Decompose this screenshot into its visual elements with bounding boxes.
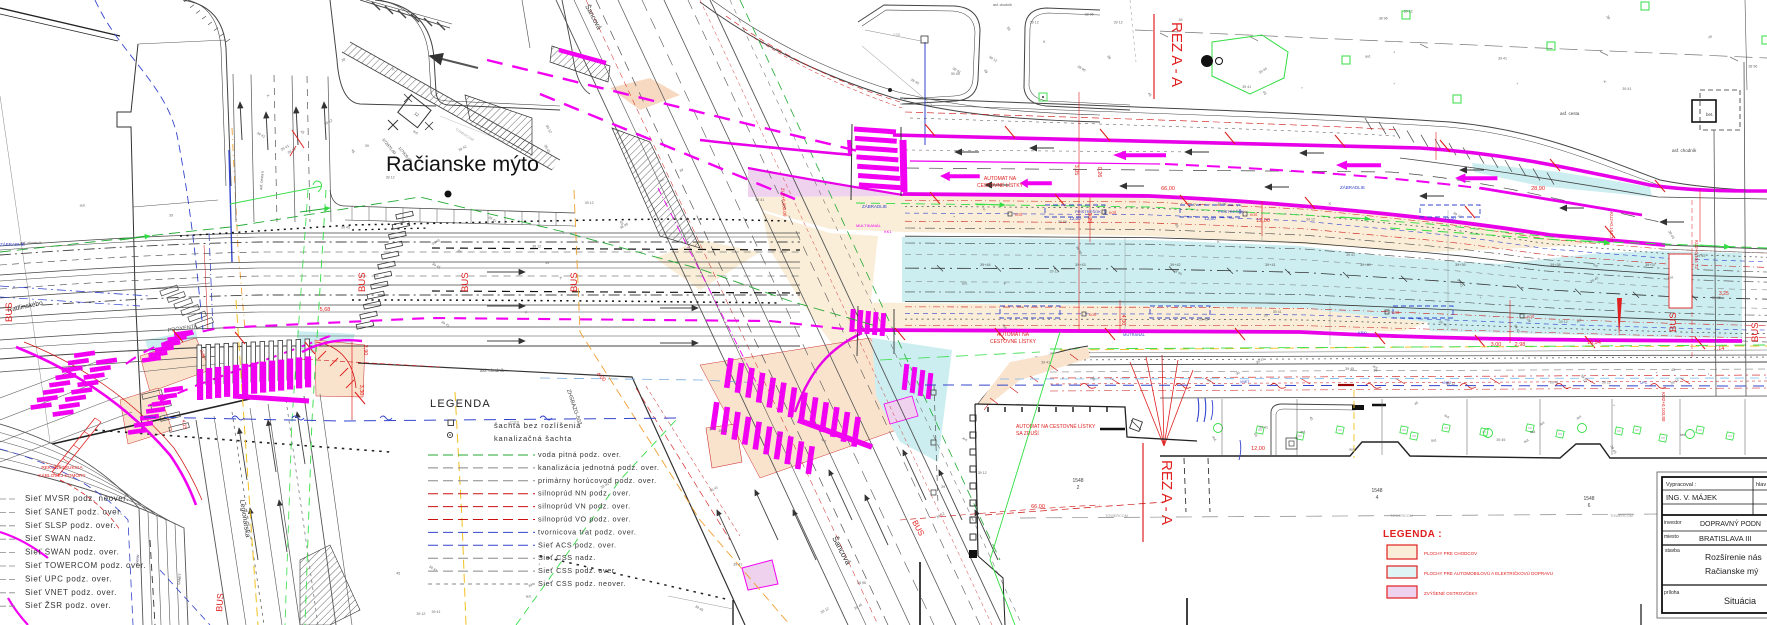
svg-text:Sieť MVSR podz. neover.: Sieť MVSR podz. neover. <box>25 494 129 503</box>
svg-text:asf.: asf. <box>1530 430 1536 434</box>
svg-text:primárny horúcovod podz. over.: primárny horúcovod podz. over. <box>538 476 657 485</box>
svg-text:39 41: 39 41 <box>1622 87 1631 91</box>
svg-text:MULTIKANÁL: MULTIKANÁL <box>856 223 882 228</box>
svg-text:12,00: 12,00 <box>1204 216 1216 221</box>
svg-text:asf. chodník: asf. chodník <box>480 368 505 373</box>
svg-text:1548: 1548 <box>1371 488 1382 494</box>
svg-text:39: 39 <box>545 261 549 265</box>
svg-text:39+38: 39+38 <box>1550 263 1561 267</box>
svg-text:Rozšírenie nás: Rozšírenie nás <box>1705 552 1762 562</box>
svg-text:hlav: hlav <box>1756 482 1766 488</box>
svg-text:38 96: 38 96 <box>1379 17 1388 21</box>
svg-text:39 12: 39 12 <box>1602 381 1611 385</box>
svg-text:2: 2 <box>1077 485 1080 491</box>
svg-text:12,00: 12,00 <box>1444 216 1456 221</box>
svg-text:+: + <box>1516 82 1518 86</box>
svg-text:Račianske mýto: Račianske mýto <box>386 152 539 176</box>
svg-text:39 12: 39 12 <box>416 612 425 616</box>
svg-text:1548: 1548 <box>1072 478 1083 484</box>
svg-text:39 12: 39 12 <box>978 471 987 475</box>
svg-text:asf. cesta: asf. cesta <box>1560 111 1580 116</box>
svg-text:KÁBLOVEJ KOMORY: KÁBLOVEJ KOMORY <box>38 472 86 479</box>
svg-text:KOŠ: KOŠ <box>1392 310 1400 315</box>
svg-text:aut.: aut. <box>777 434 783 438</box>
svg-text:aut.: aut. <box>1349 448 1355 452</box>
svg-text:PRÍSTREŠOK: PRÍSTREŠOK <box>1218 209 1244 214</box>
svg-text:39+41: 39+41 <box>1265 263 1276 267</box>
svg-text:39 41: 39 41 <box>1259 426 1268 430</box>
svg-text:KOŠ: KOŠ <box>1109 210 1117 215</box>
svg-text:39: 39 <box>365 144 369 148</box>
svg-text:BUS: BUS <box>357 272 368 292</box>
svg-text:CESTOVNÉ LÍSTKY: CESTOVNÉ LÍSTKY <box>990 338 1037 345</box>
svg-text:BRATISLAVA III: BRATISLAVA III <box>1699 534 1752 543</box>
svg-text:ZÁBRADLIE: ZÁBRADLIE <box>1340 184 1365 190</box>
svg-text:12,00: 12,00 <box>1256 218 1270 224</box>
svg-text:UPC: UPC <box>1640 381 1648 385</box>
svg-text:Sieť TOWERCOM podz. over.: Sieť TOWERCOM podz. over. <box>25 561 146 570</box>
svg-text:VNET: VNET <box>1240 380 1250 384</box>
svg-text:39+42: 39+42 <box>1170 263 1181 267</box>
svg-text:Sieť CSS podz. over.: Sieť CSS podz. over. <box>538 566 617 575</box>
svg-text:KOŠ: KOŠ <box>1250 212 1258 217</box>
svg-text:39 45: 39 45 <box>1696 254 1705 258</box>
svg-text:39: 39 <box>169 213 173 217</box>
svg-text:39+39: 39+39 <box>1455 263 1466 267</box>
svg-text:3,05: 3,05 <box>1073 165 1079 176</box>
svg-text:38 96: 38 96 <box>1058 220 1067 224</box>
svg-text:Sieť CSS nadz.: Sieť CSS nadz. <box>538 553 596 562</box>
svg-text:39+37: 39+37 <box>1645 263 1656 267</box>
svg-text:39+43: 39+43 <box>1075 263 1086 267</box>
svg-text:aut.: aut. <box>526 594 532 598</box>
svg-text:Sieť VNET podz. over.: Sieť VNET podz. over. <box>25 588 117 597</box>
svg-text:Sieť SLSP podz. over.: Sieť SLSP podz. over. <box>25 521 116 530</box>
svg-text:38 96: 38 96 <box>1085 13 1094 17</box>
svg-text:39: 39 <box>1373 368 1377 372</box>
svg-text:39 12: 39 12 <box>1446 382 1455 386</box>
svg-text:tvornicova trat podz. over.: tvornicova trat podz. over. <box>538 527 637 536</box>
svg-text:39 12: 39 12 <box>1404 9 1413 13</box>
svg-text:aut.: aut. <box>80 203 86 207</box>
svg-text:39 41: 39 41 <box>1041 360 1050 364</box>
svg-text:BUS: BUS <box>4 302 15 322</box>
svg-text:ZÁBRADLIE: ZÁBRADLIE <box>0 241 25 247</box>
svg-text:38 96: 38 96 <box>1748 64 1757 68</box>
svg-text:Vypracoval :: Vypracoval : <box>1666 482 1697 488</box>
svg-text:Sieť SWAN nadz.: Sieť SWAN nadz. <box>25 534 96 543</box>
svg-text:39 45: 39 45 <box>1199 318 1208 322</box>
svg-text:TOWERCOM: TOWERCOM <box>1390 514 1413 518</box>
svg-text:TOWERCOM: TOWERCOM <box>1610 514 1633 518</box>
svg-text:silnoprúd VN podz. over.: silnoprúd VN podz. over. <box>538 502 631 511</box>
svg-text:kanalizácia jednotná podz. ove: kanalizácia jednotná podz. over. <box>538 463 660 472</box>
svg-text:39 12: 39 12 <box>1114 21 1123 25</box>
svg-text:PRÍSTREŠOK: PRÍSTREŠOK <box>1075 209 1101 214</box>
svg-text:Račianske mý: Račianske mý <box>1705 566 1759 576</box>
svg-text:+: + <box>1374 386 1376 390</box>
svg-text:39 41: 39 41 <box>733 563 742 567</box>
svg-text:4,00: 4,00 <box>1120 315 1126 326</box>
svg-text:39 12: 39 12 <box>532 245 541 249</box>
svg-text:LEGENDA: LEGENDA <box>430 398 491 410</box>
svg-text:investor: investor <box>1664 520 1682 526</box>
svg-text:3,30: 3,30 <box>358 385 364 396</box>
svg-text:CESTOVNÉ LÍSTKY: CESTOVNÉ LÍSTKY <box>977 182 1024 189</box>
svg-text:Sieť UPC podz. over.: Sieť UPC podz. over. <box>25 574 112 583</box>
svg-text:4: 4 <box>1376 495 1379 501</box>
svg-text:39 12: 39 12 <box>1306 218 1315 222</box>
svg-text:28,90: 28,90 <box>1531 186 1545 192</box>
svg-text:39+44: 39+44 <box>980 263 991 267</box>
svg-text:príloha: príloha <box>1664 590 1680 596</box>
svg-text:39 41: 39 41 <box>1346 253 1355 257</box>
svg-text:KRKI: KRKI <box>1358 330 1367 335</box>
svg-text:DOPRAVNÝ PODN: DOPRAVNÝ PODN <box>1700 519 1761 528</box>
svg-text:ZÁBRADLIE: ZÁBRADLIE <box>862 203 887 209</box>
svg-text:45: 45 <box>396 571 400 575</box>
svg-text:PLOCHY PRE AUTOMOBILOVÚ A ELEK: PLOCHY PRE AUTOMOBILOVÚ A ELEKTRIČKOVÚ D… <box>1424 570 1553 576</box>
svg-text:aut.: aut. <box>1365 55 1371 59</box>
svg-text:39: 39 <box>1179 18 1183 22</box>
svg-text:5,68: 5,68 <box>320 307 331 313</box>
svg-text:BUS: BUS <box>1668 312 1679 332</box>
svg-text:REKONŠTRUKCIA: REKONŠTRUKCIA <box>41 464 83 471</box>
svg-text:PLOCHY PRE CHODCOV: PLOCHY PRE CHODCOV <box>1424 551 1477 556</box>
svg-text:39 41: 39 41 <box>1242 85 1251 89</box>
svg-text:39 45: 39 45 <box>1712 296 1721 300</box>
svg-text:0,26: 0,26 <box>1096 167 1102 178</box>
svg-text:Situácia: Situácia <box>1724 596 1756 606</box>
svg-text:39 41: 39 41 <box>432 610 441 614</box>
svg-text:AUTOMAT NA: AUTOMAT NA <box>997 332 1030 338</box>
svg-text:39: 39 <box>1264 313 1268 317</box>
svg-text:12,00: 12,00 <box>1251 446 1265 452</box>
svg-text:LEGENDA :: LEGENDA : <box>1383 529 1442 540</box>
svg-text:3,25: 3,25 <box>1086 213 1092 224</box>
svg-text:39 12: 39 12 <box>585 201 594 205</box>
svg-text:Sieť ACS podz. over.: Sieť ACS podz. over. <box>538 540 617 549</box>
svg-text:KOŠ: KOŠ <box>1015 212 1023 217</box>
svg-text:asf. chodník: asf. chodník <box>1672 148 1697 153</box>
svg-text:bet.: bet. <box>1706 112 1714 117</box>
svg-text:silnoprúd NN podz. over.: silnoprúd NN podz. over. <box>538 489 631 498</box>
svg-text:aut.: aut. <box>1668 276 1674 280</box>
svg-text:38 96: 38 96 <box>1217 202 1226 206</box>
svg-text:TOWERCOM: TOWERCOM <box>1105 514 1128 518</box>
svg-text:MUTRANAL: MUTRANAL <box>1123 332 1146 337</box>
svg-text:miesto: miesto <box>1664 534 1679 540</box>
svg-text:bet.: bet. <box>1680 433 1686 437</box>
svg-text:39 41: 39 41 <box>1498 57 1507 61</box>
svg-text:39 12: 39 12 <box>1050 270 1059 274</box>
svg-text:12,00: 12,00 <box>1069 216 1081 221</box>
svg-text:39 12: 39 12 <box>1030 20 1039 24</box>
svg-text:Sieť SANET podz. over.: Sieť SANET podz. over. <box>25 507 123 516</box>
svg-text:6: 6 <box>1588 503 1591 509</box>
svg-text:KK1: KK1 <box>884 229 892 234</box>
svg-text:aut.: aut. <box>1431 438 1437 442</box>
svg-text:šachta bez rozlíšenia: šachta bez rozlíšenia <box>494 421 581 430</box>
svg-text:Sieť CSS podz. neover.: Sieť CSS podz. neover. <box>538 579 626 588</box>
svg-text:+: + <box>1480 296 1482 300</box>
svg-text:39 41: 39 41 <box>718 429 727 433</box>
svg-text:45: 45 <box>1671 368 1675 372</box>
svg-text:38 96: 38 96 <box>857 581 866 585</box>
svg-text:ZVÝŠENÉ OSTROVČEKY: ZVÝŠENÉ OSTROVČEKY <box>1424 590 1478 596</box>
svg-text:Sieť SWAN podz. over.: Sieť SWAN podz. over. <box>25 548 119 557</box>
svg-text:39 41: 39 41 <box>1550 381 1559 385</box>
svg-text:2,90: 2,90 <box>362 345 368 356</box>
svg-text:kanalizačná šachta: kanalizačná šachta <box>494 434 572 443</box>
svg-text:Sieť ŽSR podz. over.: Sieť ŽSR podz. over. <box>25 601 111 610</box>
svg-text:asf.: asf. <box>1300 430 1306 434</box>
svg-text:KOŠ: KOŠ <box>1089 312 1097 317</box>
svg-text:REZ A - A: REZ A - A <box>1158 460 1175 525</box>
svg-text:+: + <box>1385 382 1387 386</box>
svg-text:66,00: 66,00 <box>1161 186 1175 192</box>
svg-text:+: + <box>1656 371 1658 375</box>
svg-text:39 45: 39 45 <box>341 225 350 229</box>
svg-text:39 45: 39 45 <box>951 72 960 76</box>
svg-text:BUS: BUS <box>1750 322 1761 342</box>
svg-text:+: + <box>1022 305 1024 309</box>
svg-text:asf. chodník: asf. chodník <box>993 3 1012 7</box>
svg-text:KU2+0,104,72: KU2+0,104,72 <box>1609 212 1614 241</box>
svg-text:aut.: aut. <box>962 282 968 286</box>
svg-text:silnoprúd VO podz. over.: silnoprúd VO podz. over. <box>538 515 631 524</box>
svg-text:39 41: 39 41 <box>1273 310 1282 314</box>
svg-text:39 45: 39 45 <box>1496 438 1505 442</box>
svg-text:ING. V. MÁJEK: ING. V. MÁJEK <box>1666 493 1717 502</box>
svg-text:REZ A - A: REZ A - A <box>1168 22 1185 87</box>
svg-text:CSS: CSS <box>893 33 901 37</box>
svg-text:1548: 1548 <box>1583 496 1594 502</box>
svg-text:39 41: 39 41 <box>755 198 764 202</box>
svg-text:39 45: 39 45 <box>1345 367 1354 371</box>
svg-text:voda pitná podz. over.: voda pitná podz. over. <box>538 450 622 459</box>
svg-text:AUTOMAT NA: AUTOMAT NA <box>984 176 1017 182</box>
svg-text:BUS: BUS <box>460 272 471 292</box>
svg-text:39 12: 39 12 <box>386 176 395 180</box>
svg-text:AUTOMAT NA CESTOVNÉ LÍSTKY: AUTOMAT NA CESTOVNÉ LÍSTKY <box>1016 423 1096 430</box>
svg-text:stavba: stavba <box>1665 548 1680 554</box>
svg-text:39+40: 39+40 <box>1360 263 1371 267</box>
svg-text:39 12: 39 12 <box>1559 320 1568 324</box>
svg-text:39: 39 <box>941 485 945 489</box>
